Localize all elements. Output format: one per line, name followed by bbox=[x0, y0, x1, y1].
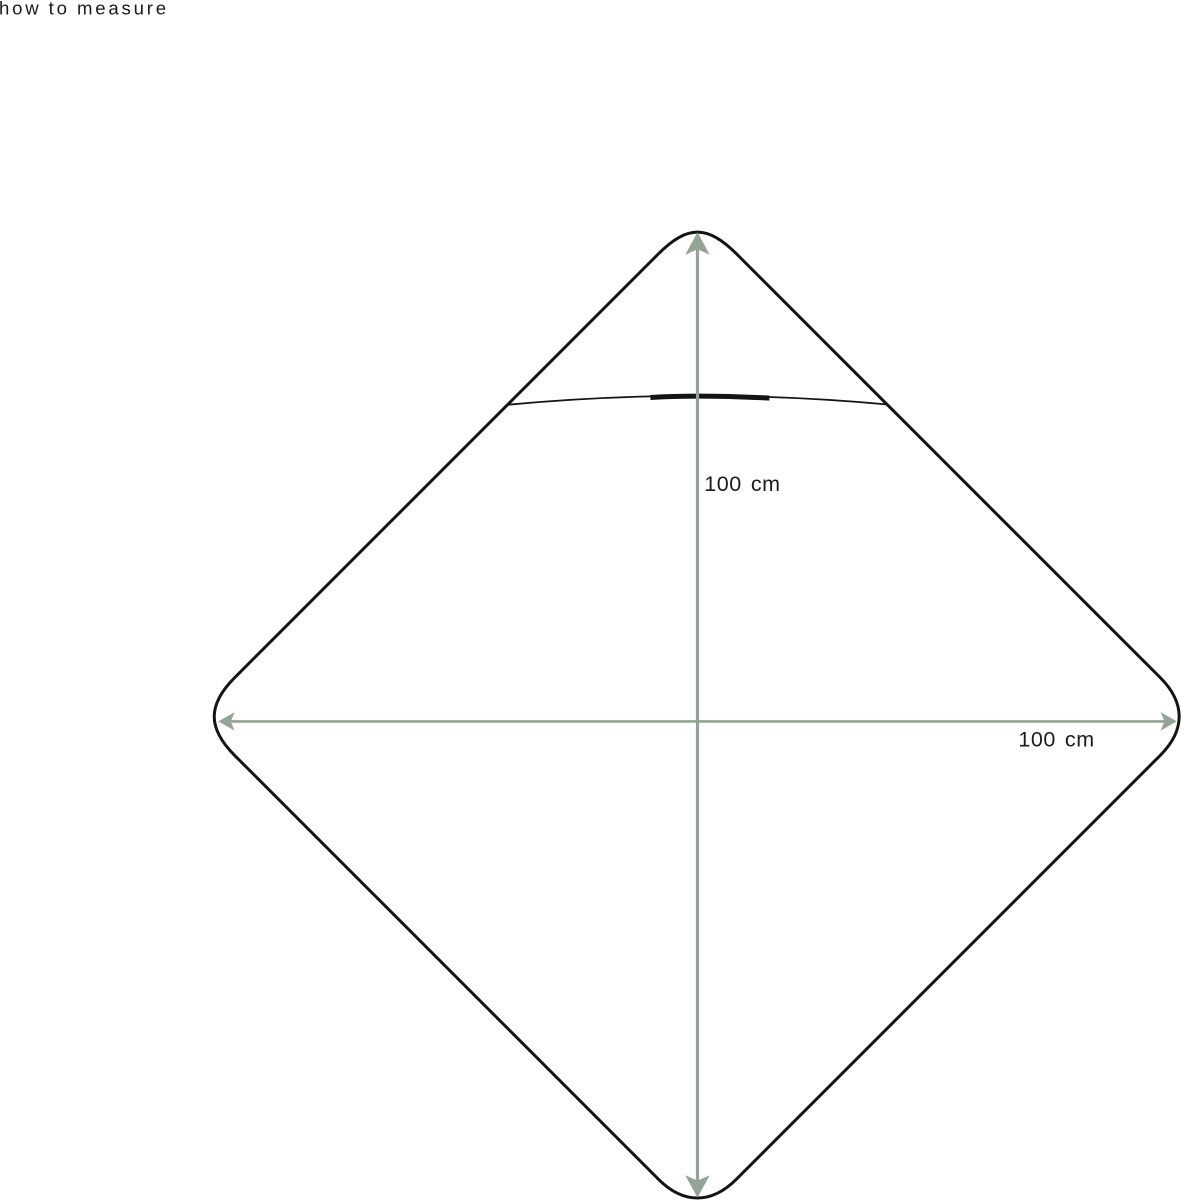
svg-text:100 cm: 100 cm bbox=[704, 472, 780, 496]
svg-text:how to measure: how to measure bbox=[0, 0, 169, 19]
svg-text:100 cm: 100 cm bbox=[1018, 727, 1094, 751]
